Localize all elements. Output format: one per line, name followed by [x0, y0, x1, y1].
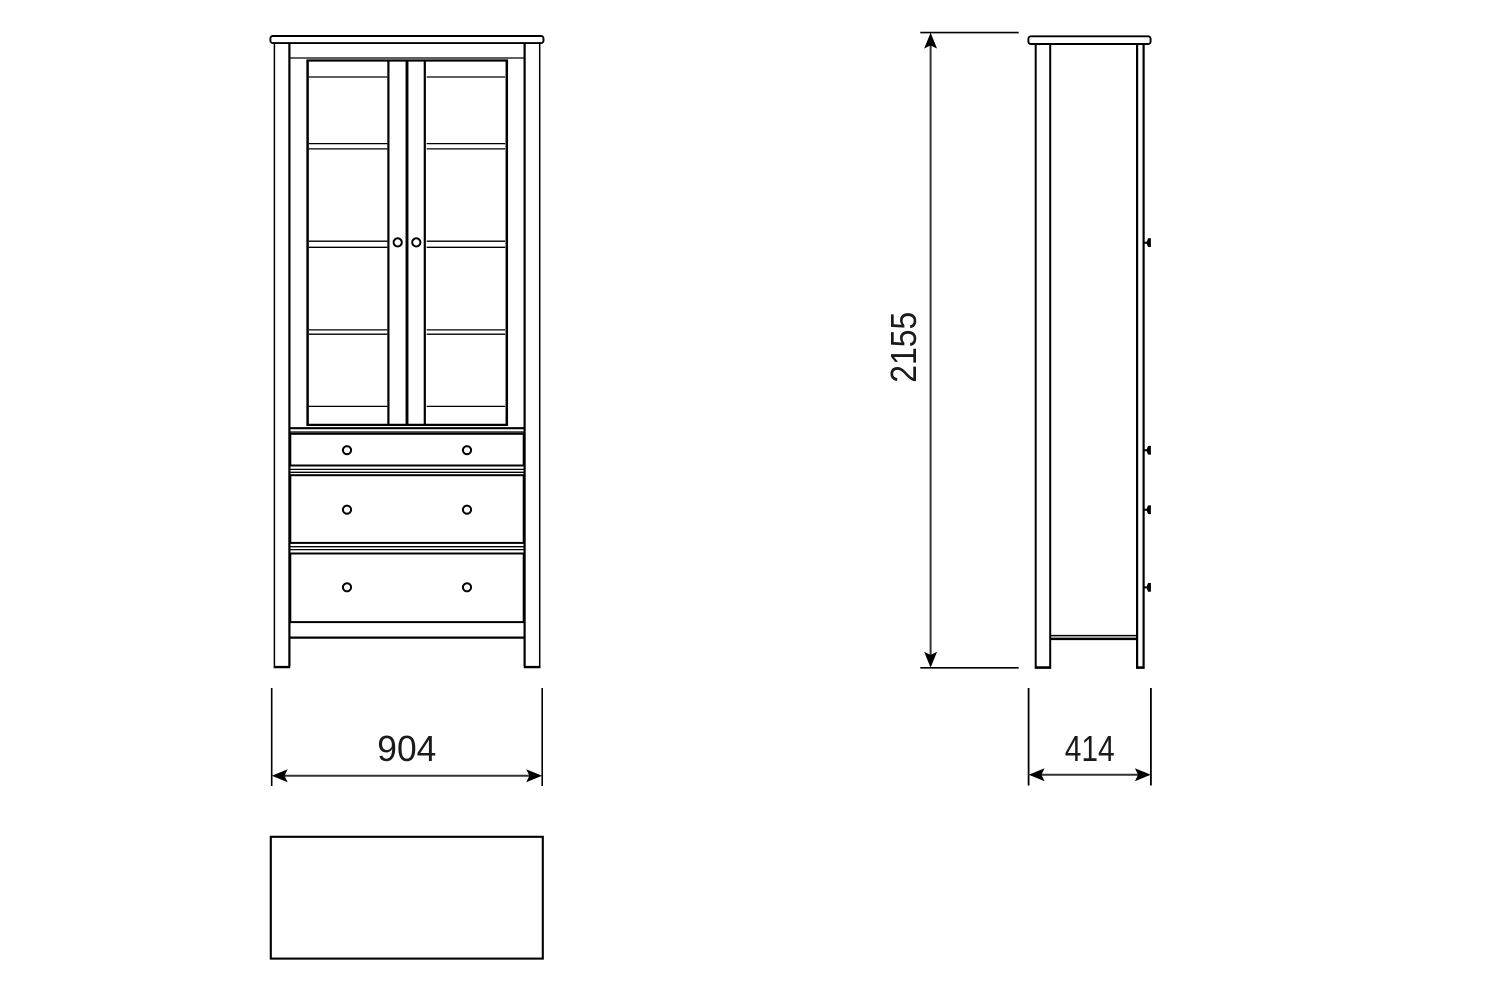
svg-text:414: 414	[1065, 728, 1115, 769]
svg-text:2155: 2155	[883, 312, 924, 383]
svg-text:904: 904	[377, 728, 436, 769]
